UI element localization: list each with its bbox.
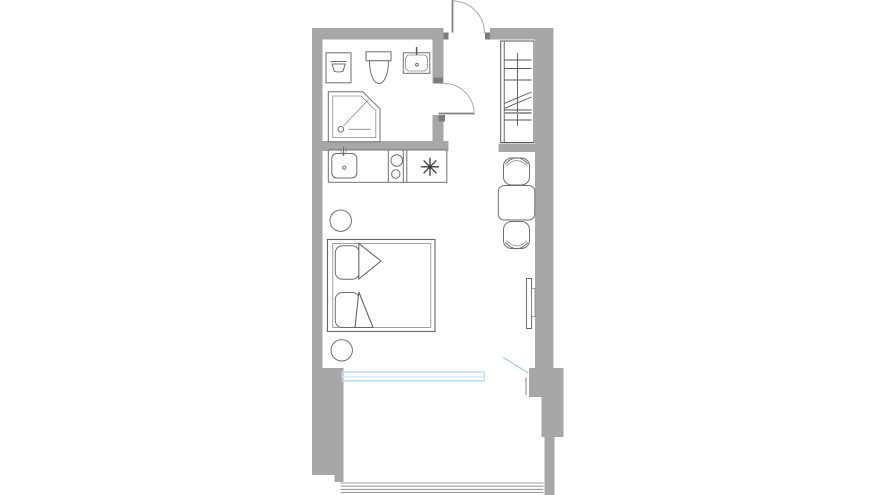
floor-plan-page <box>0 0 880 495</box>
wall-top-right <box>490 28 554 40</box>
washing-machine <box>326 53 351 83</box>
wall-left-step <box>335 475 344 482</box>
balcony-railing <box>341 483 544 492</box>
bath-jamb-bottom <box>439 115 446 122</box>
wardrobe-closet <box>501 41 534 143</box>
wall-bathroom-upper <box>433 39 444 84</box>
tv-screen <box>527 279 532 329</box>
kitchen <box>328 147 447 183</box>
bath-jamb-top <box>434 78 444 84</box>
tv-bracket <box>532 289 536 317</box>
bathroom-fixtures <box>326 47 430 142</box>
window-cap-left <box>342 371 343 381</box>
entry-door-swing-arc <box>453 1 485 33</box>
toilet-bowl <box>370 61 389 84</box>
dining-set <box>498 158 535 249</box>
wall-left <box>312 28 323 368</box>
dining-chair-bottom <box>504 222 530 249</box>
toilet <box>366 52 391 84</box>
toilet-tank <box>366 52 391 61</box>
refrigerator-snowflake-icon <box>422 158 439 175</box>
corner-shower <box>328 92 380 142</box>
round-side-table-upper <box>330 210 351 231</box>
entry-jamb-left <box>444 33 449 40</box>
window-edge-bottom <box>342 380 486 381</box>
balcony-door <box>503 358 528 396</box>
wall-left-pillar <box>312 368 344 475</box>
window-edge-top <box>342 371 486 372</box>
wall-right-pillar-a <box>529 368 564 397</box>
wall-right-pillar-b <box>542 397 564 437</box>
entry-door <box>453 0 485 33</box>
balcony-door-open-leaf <box>503 358 528 374</box>
pillow-top <box>335 246 359 279</box>
bathroom-door <box>439 83 475 113</box>
dining-table <box>498 186 535 221</box>
wall-mounted-tv <box>527 279 536 329</box>
washing-machine-body <box>326 53 351 83</box>
double-bed <box>328 240 436 332</box>
wash-basin <box>403 47 430 73</box>
floor-plan-canvas <box>0 0 880 495</box>
sleeping-area <box>328 210 436 361</box>
window-cap-right <box>484 371 485 381</box>
wall-top-left <box>312 28 444 40</box>
entry-jamb-right <box>485 33 490 40</box>
wall-right <box>535 39 554 368</box>
bathroom-door-swing-arc <box>444 83 475 113</box>
panoramic-window <box>342 371 486 381</box>
round-side-table-lower <box>331 340 352 361</box>
window-center-line <box>342 376 486 378</box>
dining-chair-top <box>504 158 530 185</box>
shower-tray-outer <box>328 92 380 142</box>
wall-closet-bottom <box>499 144 543 153</box>
wall-right-balcony-strip <box>545 437 555 495</box>
